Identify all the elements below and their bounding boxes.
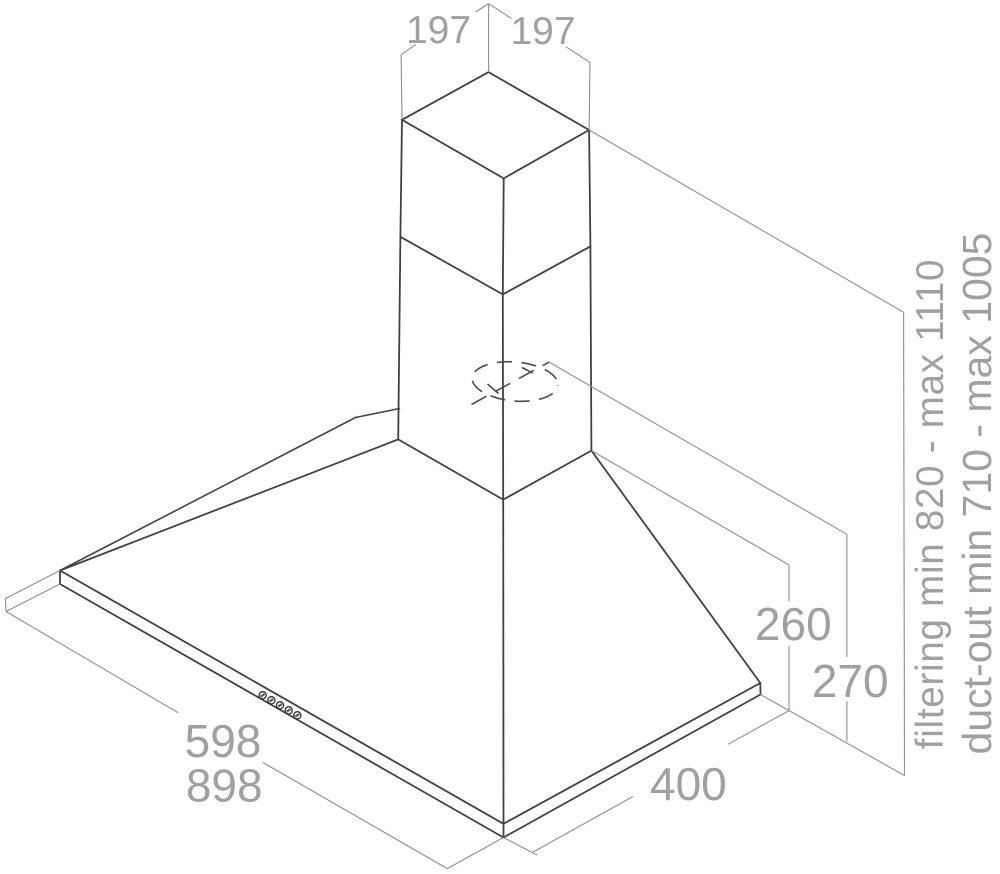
svg-text:270: 270 [812,655,889,707]
svg-text:197: 197 [510,10,575,53]
svg-text:400: 400 [650,758,727,810]
svg-text:197: 197 [406,9,471,52]
svg-text:260: 260 [755,598,832,650]
svg-text:898: 898 [186,760,263,812]
svg-text:duct-out min 710 - max 1005: duct-out min 710 - max 1005 [954,233,1000,755]
svg-text:filtering min 820 - max 1110: filtering min 820 - max 1110 [909,259,952,749]
